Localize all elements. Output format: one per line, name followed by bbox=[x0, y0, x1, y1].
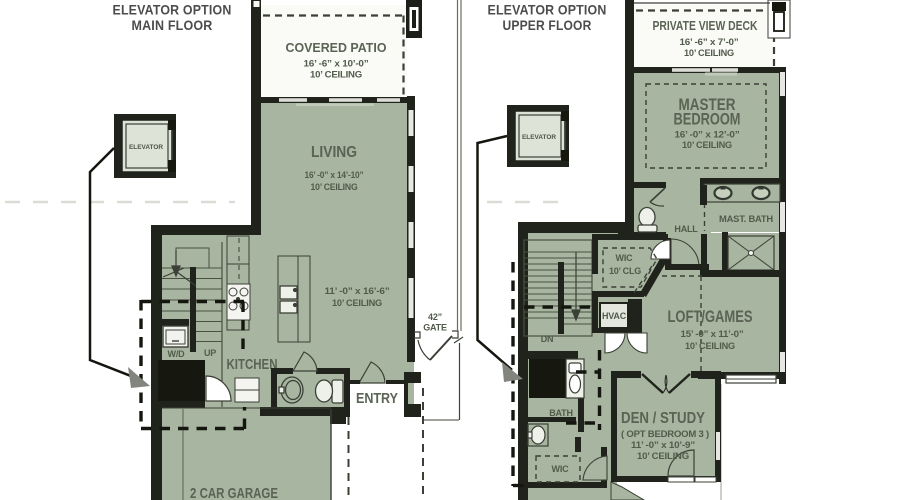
svg-text:HVAC: HVAC bbox=[602, 311, 627, 321]
svg-text:KITCHEN: KITCHEN bbox=[227, 357, 278, 373]
svg-text:W/D: W/D bbox=[168, 349, 186, 359]
svg-text:HALL: HALL bbox=[674, 224, 698, 234]
svg-text:PRIVATE VIEW DECK: PRIVATE VIEW DECK bbox=[653, 19, 758, 33]
svg-text:UP: UP bbox=[204, 348, 216, 358]
svg-text:2 CAR GARAGE: 2 CAR GARAGE bbox=[190, 485, 278, 500]
svg-text:10’ CLG: 10’ CLG bbox=[609, 266, 641, 276]
svg-text:WIC: WIC bbox=[552, 464, 570, 474]
svg-text:10’ CEILING: 10’ CEILING bbox=[311, 182, 358, 192]
svg-text:LIVING: LIVING bbox=[311, 144, 357, 161]
svg-text:ELEVATOR OPTION: ELEVATOR OPTION bbox=[113, 2, 232, 18]
svg-text:ENTRY: ENTRY bbox=[356, 390, 398, 407]
svg-text:DN: DN bbox=[541, 334, 554, 344]
svg-text:16’ -6” x 10’-0”: 16’ -6” x 10’-0” bbox=[304, 59, 369, 69]
svg-text:10’ CEILING: 10’ CEILING bbox=[684, 48, 734, 58]
svg-text:MAST. BATH: MAST. BATH bbox=[719, 214, 773, 224]
svg-text:UPPER FLOOR: UPPER FLOOR bbox=[503, 17, 592, 33]
svg-text:11’ -0” x 10’-9”: 11’ -0” x 10’-9” bbox=[631, 440, 695, 450]
svg-text:LOFT/GAMES: LOFT/GAMES bbox=[668, 307, 753, 326]
svg-text:WIC: WIC bbox=[616, 253, 634, 263]
svg-text:MAIN FLOOR: MAIN FLOOR bbox=[132, 17, 213, 33]
svg-text:ELEVATOR: ELEVATOR bbox=[522, 134, 556, 141]
svg-text:( OPT BEDROOM 3 ): ( OPT BEDROOM 3 ) bbox=[621, 429, 709, 439]
svg-text:16’ -0” x 12’-0”: 16’ -0” x 12’-0” bbox=[675, 130, 740, 140]
svg-text:10’ CEILING: 10’ CEILING bbox=[332, 298, 382, 308]
svg-text:11’ -0” x 16’-6”: 11’ -0” x 16’-6” bbox=[325, 286, 390, 296]
svg-text:GATE: GATE bbox=[423, 323, 447, 333]
svg-text:16’ -6” x 7’-0”: 16’ -6” x 7’-0” bbox=[680, 37, 739, 47]
svg-text:10’ CEILING: 10’ CEILING bbox=[682, 140, 732, 150]
svg-text:ELEVATOR OPTION: ELEVATOR OPTION bbox=[488, 2, 607, 18]
svg-text:10’ CEILING: 10’ CEILING bbox=[685, 341, 735, 351]
svg-text:BEDROOM: BEDROOM bbox=[674, 110, 741, 129]
svg-text:10’ CEILING: 10’ CEILING bbox=[310, 70, 362, 80]
svg-text:BATH: BATH bbox=[549, 408, 573, 418]
svg-text:42”: 42” bbox=[428, 312, 442, 322]
svg-text:15’ -0” x 11’-0”: 15’ -0” x 11’-0” bbox=[681, 329, 744, 339]
svg-text:COVERED PATIO: COVERED PATIO bbox=[286, 40, 387, 55]
svg-text:ELEVATOR: ELEVATOR bbox=[129, 144, 163, 151]
svg-text:10’ CEILING: 10’ CEILING bbox=[637, 451, 689, 461]
svg-text:16’ -0” x 14’-10”: 16’ -0” x 14’-10” bbox=[305, 170, 364, 180]
svg-text:DEN / STUDY: DEN / STUDY bbox=[621, 410, 705, 427]
